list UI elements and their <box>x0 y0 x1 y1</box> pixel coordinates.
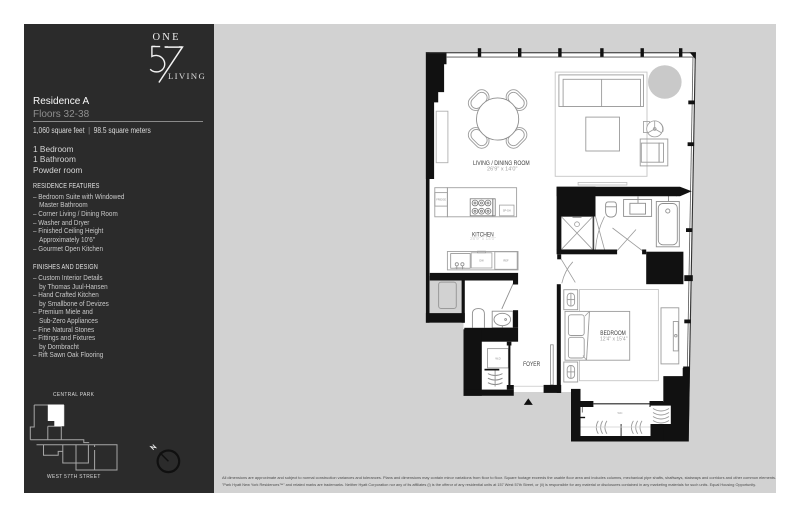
svg-text:REF: REF <box>503 259 509 263</box>
svg-text:FOYER: FOYER <box>523 362 541 368</box>
svg-text:12'4" x 15'4": 12'4" x 15'4" <box>600 337 628 343</box>
svg-text:SP-SH: SP-SH <box>503 209 511 213</box>
svg-text:26'9" x 14'0": 26'9" x 14'0" <box>487 166 518 172</box>
svg-text:26'9" x 14'0": 26'9" x 14'0" <box>470 236 497 241</box>
svg-text:WIC: WIC <box>617 411 622 415</box>
svg-text:W.D: W.D <box>495 357 500 361</box>
svg-text:All dimensions are approximate: All dimensions are approximate and subje… <box>222 476 776 480</box>
svg-text:"Park Hyatt New York Residence: "Park Hyatt New York Residences™" and re… <box>222 483 756 487</box>
svg-text:FRIDGE: FRIDGE <box>436 198 446 202</box>
svg-text:DW: DW <box>479 259 484 263</box>
